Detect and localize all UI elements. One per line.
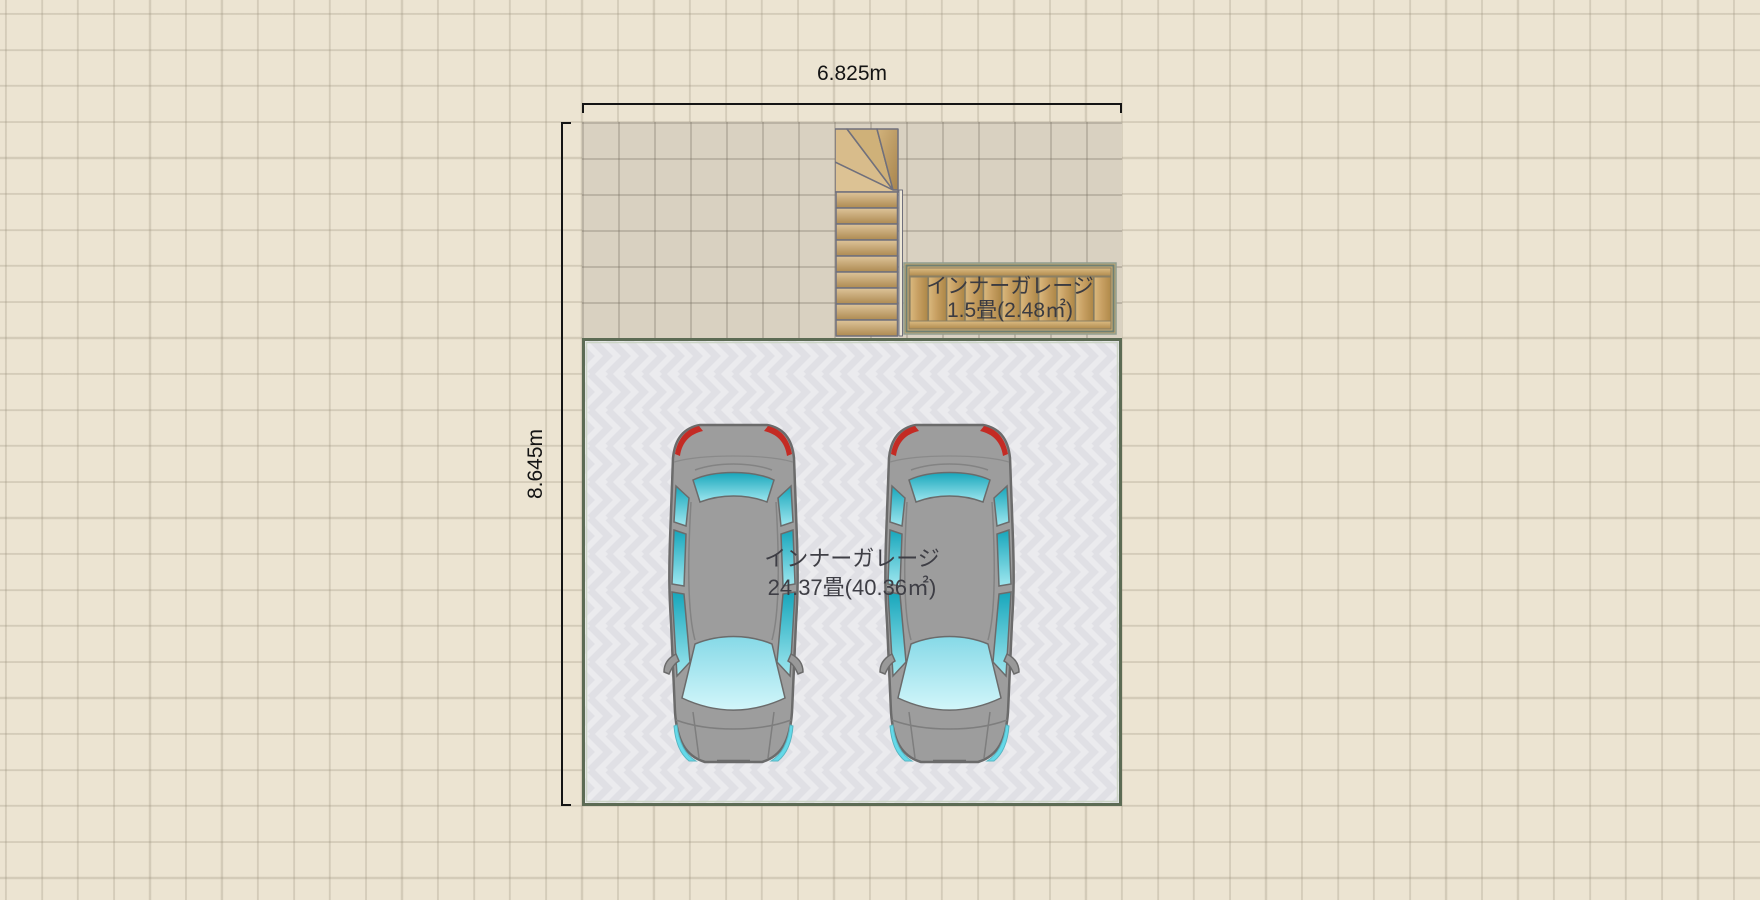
- height-dimension-label: 8.645m: [524, 404, 548, 524]
- height-dimension-line: [561, 122, 571, 806]
- staircase[interactable]: [835, 128, 903, 337]
- room-inner-garage-small[interactable]: [903, 262, 1117, 335]
- room-name-large: インナーガレージ: [582, 544, 1122, 573]
- floorplan-canvas: 6.825m 8.645m: [0, 0, 1760, 900]
- width-dimension-label: 6.825m: [582, 62, 1122, 86]
- width-dimension-line: [582, 103, 1122, 113]
- room-label-inner-garage-large: インナーガレージ 24.37畳(40.36㎡): [582, 544, 1122, 602]
- room-area-large: 24.37畳(40.36㎡): [582, 573, 1122, 602]
